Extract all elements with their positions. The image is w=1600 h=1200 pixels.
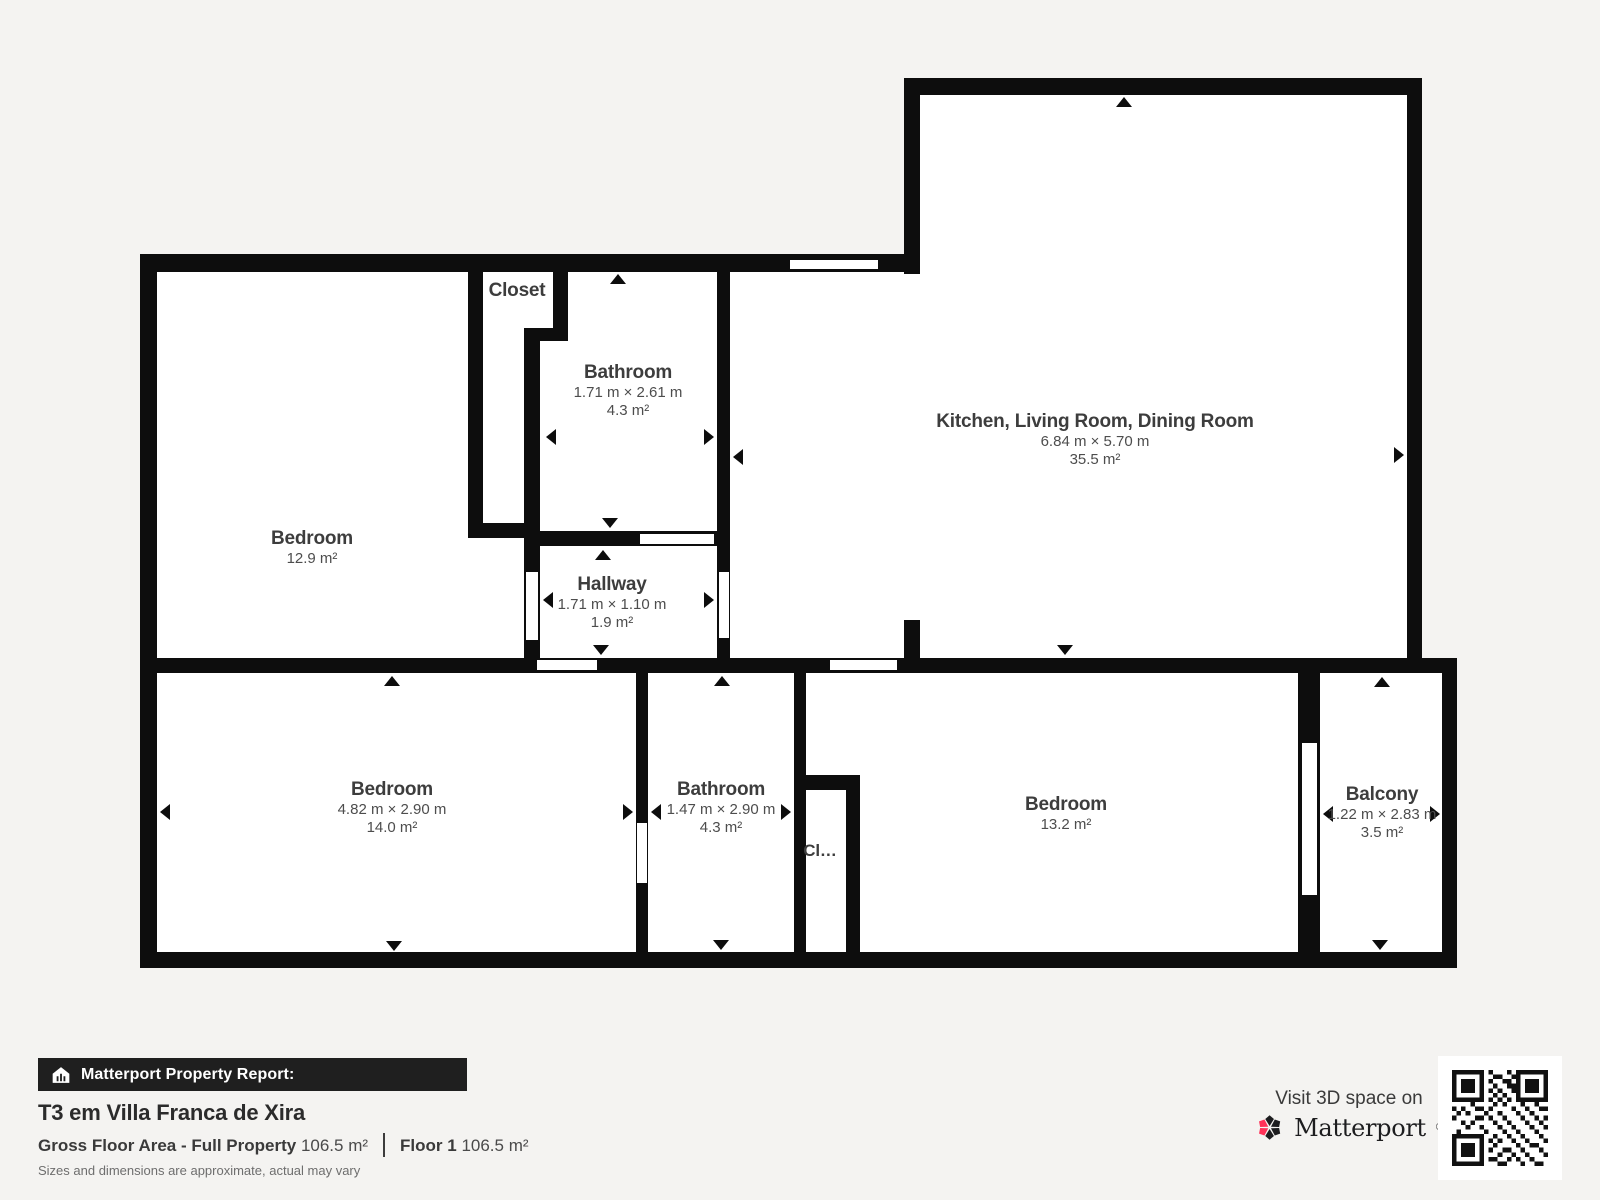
wall-closet-right-upper <box>553 272 568 328</box>
wall-kitchen-stub <box>904 620 920 658</box>
wall-closet-jog <box>524 328 568 341</box>
matterport-house-icon <box>51 1065 71 1085</box>
room-name: Bedroom <box>271 527 353 550</box>
matterport-pinwheel-icon <box>1254 1112 1285 1143</box>
gross-area-label: Gross Floor Area - Full Property <box>38 1136 296 1155</box>
room-label-bathroom-top: Bathroom 1.71 m × 2.61 m 4.3 m² <box>574 361 683 420</box>
room-name: Balcony <box>1328 783 1437 806</box>
room-dimensions: 1.22 m × 2.83 m <box>1328 806 1437 824</box>
wall-kitchen-right <box>1407 78 1422 673</box>
visit-3d-space-text: Visit 3D space on <box>1275 1088 1423 1110</box>
room-label-balcony: Balcony 1.22 m × 2.83 m 3.5 m² <box>1328 783 1437 842</box>
divider <box>383 1133 385 1157</box>
wall-bathroom-bottom-right <box>794 658 806 952</box>
room-name: Bedroom <box>338 778 447 801</box>
door-bedroom-balcony <box>1302 743 1317 895</box>
wall-outer-right <box>1442 658 1457 968</box>
floor-value: 106.5 m² <box>461 1136 528 1155</box>
wall-outer-left <box>140 254 157 968</box>
room-name: Hallway <box>558 573 667 596</box>
matterport-logo: Matterport® <box>1254 1112 1444 1143</box>
qr-code-pattern <box>1452 1070 1548 1166</box>
room-label-closet-bottom: Cl… <box>803 841 836 861</box>
room-label-kitchen-living-dining: Kitchen, Living Room, Dining Room 6.84 m… <box>936 410 1253 469</box>
wall-kitchen-top <box>904 78 1422 95</box>
room-area: 12.9 m² <box>271 550 353 568</box>
room-dimensions: 1.71 m × 2.61 m <box>574 384 683 402</box>
room-label-hallway: Hallway 1.71 m × 1.10 m 1.9 m² <box>558 573 667 632</box>
wall-kitchen-left-upper <box>904 78 920 274</box>
room-name: Bathroom <box>667 778 776 801</box>
room-name: Cl… <box>803 841 836 861</box>
room-area: 35.5 m² <box>936 451 1253 469</box>
report-bar-label: Matterport Property Report: <box>81 1066 294 1084</box>
wall-bedroom-bathroom-bottom <box>636 658 648 952</box>
room-area: 13.2 m² <box>1025 816 1107 834</box>
window-kitchen-top <box>790 260 878 269</box>
door-kitchen-bedroom-br <box>830 660 897 670</box>
room-label-bedroom-bottom-right: Bedroom 13.2 m² <box>1025 793 1107 834</box>
matterport-wordmark: Matterport <box>1294 1114 1426 1142</box>
qr-code <box>1438 1056 1562 1180</box>
wall-closet-bottom-right <box>846 775 860 952</box>
room-area: 1.9 m² <box>558 614 667 632</box>
room-name: Closet <box>489 279 546 302</box>
door-hallway-bedroom-bl <box>537 660 597 670</box>
floorplan-report-page: { "plan": { "rooms": { "bedroom_tl": { "… <box>0 0 1600 1200</box>
door-hallway-kitchen <box>719 572 729 638</box>
room-dimensions: 1.71 m × 1.10 m <box>558 596 667 614</box>
room-label-bedroom-bottom-left: Bedroom 4.82 m × 2.90 m 14.0 m² <box>338 778 447 837</box>
gross-area-value: 106.5 m² <box>301 1136 368 1155</box>
floorplan-drawing <box>0 0 1600 1200</box>
disclaimer-text: Sizes and dimensions are approximate, ac… <box>38 1163 360 1178</box>
property-title: T3 em Villa Franca de Xira <box>38 1100 305 1126</box>
door-bedroom-bathroom-bottom <box>637 823 647 883</box>
room-area: 4.3 m² <box>574 402 683 420</box>
door-bathroom-top <box>640 534 714 544</box>
room-label-bathroom-bottom: Bathroom 1.47 m × 2.90 m 4.3 m² <box>667 778 776 837</box>
wall-bedroom-closet <box>468 254 483 538</box>
room-label-bedroom-top-left: Bedroom 12.9 m² <box>271 527 353 568</box>
room-name: Bedroom <box>1025 793 1107 816</box>
room-label-closet-top: Closet <box>489 279 546 302</box>
wall-outer-bottom <box>140 952 1457 968</box>
report-bar: Matterport Property Report: <box>38 1058 467 1091</box>
room-area: 3.5 m² <box>1328 824 1437 842</box>
area-summary: Gross Floor Area - Full Property 106.5 m… <box>38 1133 529 1157</box>
room-name: Bathroom <box>574 361 683 384</box>
room-dimensions: 1.47 m × 2.90 m <box>667 801 776 819</box>
door-hallway-bedroom-tl <box>526 572 538 640</box>
room-area: 14.0 m² <box>338 819 447 837</box>
room-name: Kitchen, Living Room, Dining Room <box>936 410 1253 433</box>
room-dimensions: 6.84 m × 5.70 m <box>936 433 1253 451</box>
room-dimensions: 4.82 m × 2.90 m <box>338 801 447 819</box>
floor-label: Floor 1 <box>400 1136 457 1155</box>
room-area: 4.3 m² <box>667 819 776 837</box>
